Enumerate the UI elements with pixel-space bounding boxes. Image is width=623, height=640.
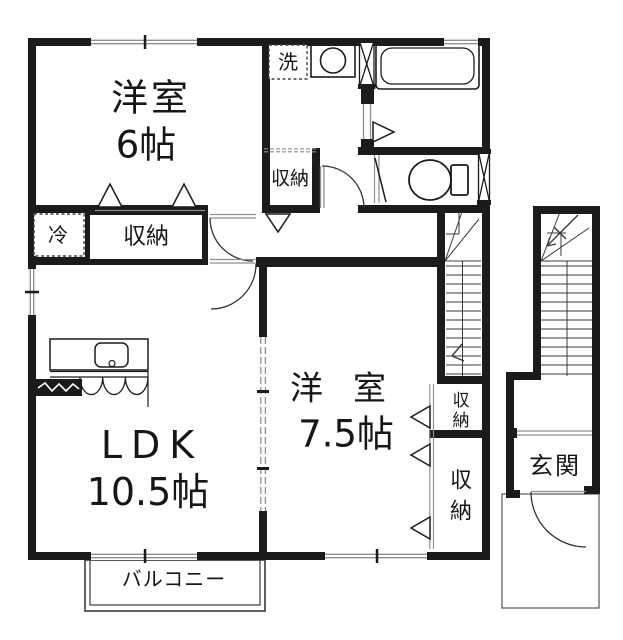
ldk-size-label: 10.5帖 [87,473,210,511]
sliding-partition [257,337,269,511]
refrigerator-label: 冷 [48,225,68,245]
washroom-door-arc [322,166,364,208]
bedroom1-name-label: 洋室 [111,80,191,117]
floorplan-drawing [0,0,623,640]
stove-icon [36,379,82,396]
entry-door-arc [531,492,586,547]
wall [482,38,490,560]
counter-scallops [80,377,148,395]
wall [437,205,445,384]
wall [508,428,517,438]
wall [429,430,488,438]
wall [358,205,488,213]
laundry-label: 洗 [278,52,298,72]
wall [533,206,600,214]
closet-door-triangle-icon [411,517,430,539]
window-icon [322,549,430,563]
wall [584,486,592,494]
door-arc-icon [321,166,325,208]
closet-hall-label: 収納 [271,170,309,189]
bedroom2-size-label: 7.5帖 [298,416,394,453]
wall [437,376,488,384]
closet-door-triangle-icon [411,444,430,466]
stairs-up-arrow [547,215,578,246]
closet-door-triangle-icon [172,184,196,207]
wall [256,257,445,267]
x-window-icon [358,38,376,89]
exterior-stairs-icon [541,212,592,376]
closet-door-triangle-icon [373,122,394,142]
wall [262,44,270,213]
washing-machine-icon [311,44,355,77]
interior-stairs-icon [445,212,481,376]
floorplan: 洋室 6帖 洗 収納 冷 収納 LDK 10.5帖 洋室 7.5帖 収納 収納 … [0,0,623,640]
closet-bedroom1-label: 収納 [123,226,169,249]
window-icon [25,266,39,318]
bedroom1-size-label: 6帖 [116,127,177,164]
closet-bedroom2-upper-label: 収納 [450,391,467,431]
closet-door-triangle-icon [411,406,430,428]
toilet-icon [409,160,468,200]
ldk-name-label: LDK [101,426,203,464]
wall [262,205,320,213]
wall [312,148,320,213]
wall [592,206,600,494]
entrance-label: 玄関 [529,454,581,478]
wall [259,511,267,556]
closet-door-triangle-icon [266,214,290,232]
door-arc-icon [210,215,256,219]
wall [259,263,267,337]
wall [358,147,488,155]
bedroom1-door-arc [210,218,253,261]
porch-outline [502,494,599,608]
genkan-step-line [517,431,592,435]
wall [533,206,541,380]
closet-bedroom2-lower-label: 収納 [447,468,469,530]
window-icon [441,38,481,46]
window-icon [88,549,200,563]
balcony-label: バルコニー [122,569,227,589]
toilet-door [375,155,387,203]
bath-folding-door [364,104,371,139]
x-window-icon [477,149,491,205]
wall [506,490,520,498]
closet-door-triangle-icon [98,184,122,207]
bathtub-icon [376,43,479,89]
ldk-door-arc [211,264,256,309]
window-icon [88,35,200,49]
bedroom2-name-label: 洋室 [290,372,416,405]
kitchen-counter-icon [50,339,148,407]
